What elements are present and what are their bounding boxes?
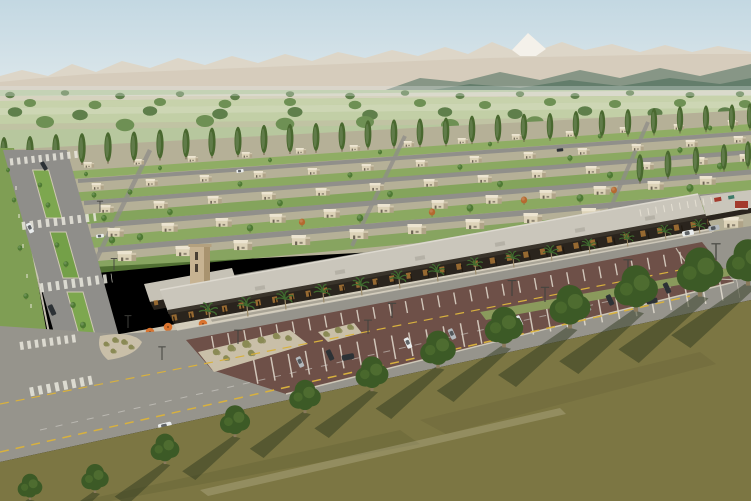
- orchard-row-light-item: [674, 99, 686, 107]
- orchard-row-light-item: [196, 115, 214, 127]
- orchard-row-light-item: [414, 99, 426, 107]
- orchard-row-light-item: [284, 98, 296, 106]
- orchard-row-dark-item: [288, 107, 303, 117]
- umbrella-cluster-item: [164, 323, 173, 332]
- verge-bollards-item: [27, 274, 28, 278]
- orchard-row-dark-item: [508, 109, 523, 119]
- orchard-row-light-item: [544, 98, 556, 106]
- verge-bollards-item: [19, 214, 20, 218]
- orchard-row-light-item: [24, 99, 36, 107]
- verge-bollards-item: [23, 244, 24, 248]
- orchard-row-light-item: [116, 119, 135, 131]
- orchard-row-light-item: [89, 101, 102, 109]
- verge-bollards-item: [31, 304, 32, 308]
- orchard-row-dark-item: [212, 109, 228, 119]
- orchard-row-light-item: [154, 98, 166, 106]
- orchard-row-dark-item: [8, 107, 22, 117]
- street-lights-item: [124, 315, 131, 328]
- orchard-row-light-item: [479, 101, 491, 109]
- orchard-row-light-item: [349, 101, 362, 109]
- verge-bollards-item: [16, 186, 17, 190]
- orchard-row-dark-item: [578, 106, 592, 116]
- orchard-row-light-item: [356, 116, 374, 128]
- orchard-row-light-item: [219, 100, 232, 108]
- orchard-row-dark-item: [143, 106, 157, 116]
- orchard-row-dark-item: [72, 110, 88, 120]
- orchard-row-light-item: [609, 100, 621, 108]
- orchard-row-light-item: [36, 116, 54, 128]
- entrance-monument-sign: [735, 201, 748, 210]
- aerial-rendering: [0, 0, 751, 501]
- rendering-canvas: [0, 0, 751, 501]
- orchard-row-dark-item: [438, 107, 452, 117]
